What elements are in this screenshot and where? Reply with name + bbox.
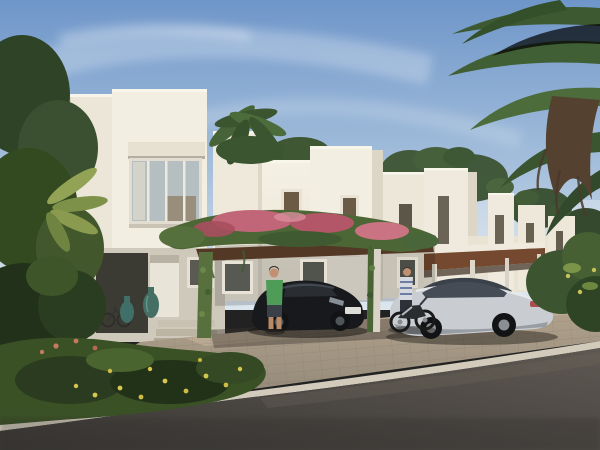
bed-clump-light [86,348,154,372]
flower [204,374,209,379]
palm-crown-base [216,136,284,164]
architectural-render-photo [0,0,600,450]
person-head [270,269,279,278]
window-mullion [165,161,168,221]
vine-clump [258,231,342,247]
roof-terrace-tree [515,190,539,206]
person-shoe [268,329,275,332]
flower [163,379,168,384]
upper-picture-window [128,142,205,228]
person-shoe [276,329,283,332]
flower [184,389,189,394]
flower [148,367,152,371]
window-mullion [147,161,150,221]
townhouse-coping [488,193,514,195]
vase-neck [124,296,130,303]
vine-leaf [205,289,211,295]
person-shorts [267,305,282,317]
license-plate [345,307,361,314]
vine-leaf [369,265,375,271]
bed-clump [196,352,264,384]
bougainvillea-cluster [355,222,409,240]
bush-leaf-light [582,282,598,290]
townhouse-coping [383,172,424,175]
bush-flower [578,290,582,294]
townhouse-window-slot [438,196,449,244]
motorcycle-hub [423,318,428,323]
window-interior-warm [166,196,196,221]
entry-door-shadow [150,255,179,263]
flower [74,339,79,344]
flower [93,393,98,398]
person-leg [277,317,282,330]
car-wheel-rim [336,317,345,326]
window-glass [225,264,250,291]
bush-flower [592,268,596,272]
window-curtain [133,162,145,220]
vine-covered-post [197,252,213,338]
car-wheel-rim [499,320,510,331]
vine-clump [401,233,439,249]
flower [53,343,58,348]
vine-leaf [199,311,205,317]
window-mullion [183,161,186,221]
carport-post [505,258,509,290]
person-leg [269,317,274,330]
townhouse-coping [424,168,468,171]
vine-leaf [367,292,373,298]
villa-coping [112,89,207,92]
flower [224,383,229,388]
flower [40,350,44,354]
flower [198,358,202,362]
vine-leaf [200,267,206,273]
flower [118,386,123,391]
vine-clump [159,226,205,248]
vase [120,301,134,323]
window-lintel [128,142,205,158]
flower [108,369,112,373]
bougainvillea-highlight [274,212,306,222]
bottom-vignette [0,418,600,450]
flower [74,384,78,388]
flower [139,395,144,400]
townhouse-coping [310,146,372,149]
post-vine-stripe [367,249,374,332]
motorcycle-hub [398,320,403,325]
person-head [403,268,411,276]
flower [93,346,98,351]
flower [238,367,242,371]
roof-terrace-tree [443,147,475,167]
bush-leaf-light [563,263,581,273]
vase-neck [148,287,154,294]
person-shirt [266,280,283,305]
entry-recess [96,253,148,333]
vase [143,292,159,318]
shrub-mid [26,256,78,296]
bush-flower [566,274,570,278]
villa-coping [68,94,112,97]
